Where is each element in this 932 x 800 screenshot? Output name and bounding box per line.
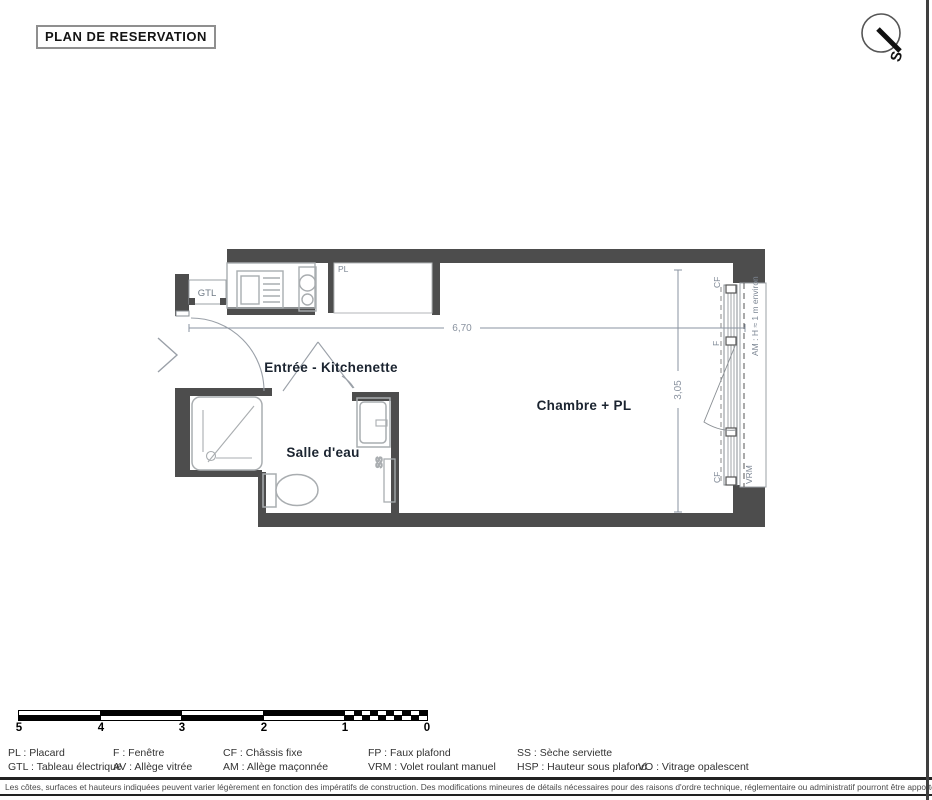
right-edge-line [926, 0, 929, 800]
legend-item-vo: VO : Vitrage opalescent [638, 761, 749, 773]
cooktop-icon [299, 267, 316, 311]
dimension-depth: 3,05 [673, 380, 684, 400]
kitchen-sink-icon [237, 271, 283, 308]
ss-label: SS [374, 456, 384, 468]
legend-item-cf: CF : Châssis fixe [223, 747, 302, 759]
shower-icon [192, 397, 262, 470]
floor-plan-page: PLAN DE RESERVATION S [0, 0, 932, 800]
door-jamb [176, 311, 189, 316]
window-frame [724, 285, 737, 485]
entry-door-arc [191, 318, 264, 391]
wall-bathroom-left [175, 388, 190, 477]
am-label: AM : H ≈ 1 m environ [750, 276, 760, 356]
scale-bar-ticks: 5 4 3 2 1 0 [0, 722, 460, 736]
vrm-label: VRM [744, 465, 754, 484]
compass-icon: S [862, 14, 906, 64]
cf-top-label: CF [712, 277, 722, 288]
window-assembly: CF F CF VRM AM : H ≈ 1 m environ [704, 276, 766, 487]
wall-bathroom-bottom-stub [258, 472, 266, 517]
wall-bathroom-bottom [190, 470, 262, 477]
legend-item-pl: PL : Placard [8, 747, 65, 759]
wall-closet-right-stub [432, 262, 440, 315]
legend-item-fp: FP : Faux plafond [368, 747, 451, 759]
cf-bottom-label: CF [712, 472, 722, 483]
footnote: Les côtes, surfaces et hauteurs indiquée… [5, 782, 865, 792]
legend-item-f: F : Fenêtre [113, 747, 164, 759]
closet-pl: PL [334, 263, 432, 313]
washbasin-icon [357, 398, 390, 447]
divider-bottom [0, 794, 932, 796]
wall-bathroom-top [189, 388, 272, 396]
legend-item-gtl: GTL : Tableau électrique [8, 761, 122, 773]
toilet-icon [263, 474, 318, 507]
scale-tick: 2 [261, 722, 267, 734]
wall-corner-top-right [733, 249, 765, 283]
scale-tick: 5 [16, 722, 22, 734]
legend-item-av: AV : Allège vitrée [113, 761, 192, 773]
wall-top [227, 249, 765, 263]
wall-kitchen-closet-divider [328, 262, 334, 313]
room-label-entree: Entrée - Kitchenette [264, 360, 398, 375]
scale-tick: 3 [179, 722, 185, 734]
wall-entry-pillar [175, 274, 189, 316]
legend-item-am: AM : Allège maçonnée [223, 761, 328, 773]
room-label-salle-deau: Salle d'eau [286, 445, 359, 460]
scale-bar [18, 710, 428, 721]
entrance-arrow-icon [158, 338, 177, 372]
scale-tick: 1 [342, 722, 348, 734]
pl-label: PL [338, 264, 349, 274]
scale-tick: 0 [424, 722, 430, 734]
dimension-width: 6,70 [452, 323, 472, 334]
compass-south-label: S [887, 49, 906, 64]
divider-top [0, 777, 932, 780]
gtl-label: GTL [198, 288, 216, 299]
wall-bottom [258, 513, 765, 527]
dimensions [189, 270, 745, 512]
legend-item-hsp: HSP : Hauteur sous plafond [517, 761, 647, 773]
legend-item-vrm: VRM : Volet roulant manuel [368, 761, 496, 773]
f-label: F [711, 341, 721, 346]
legend-item-ss: SS : Sèche serviette [517, 747, 612, 759]
scale-tick: 4 [98, 722, 104, 734]
room-label-chambre: Chambre + PL [537, 398, 632, 413]
kitchenette-unit [227, 263, 316, 311]
floor-plan-drawing: S GTL [0, 0, 932, 800]
entry-door [158, 318, 264, 391]
